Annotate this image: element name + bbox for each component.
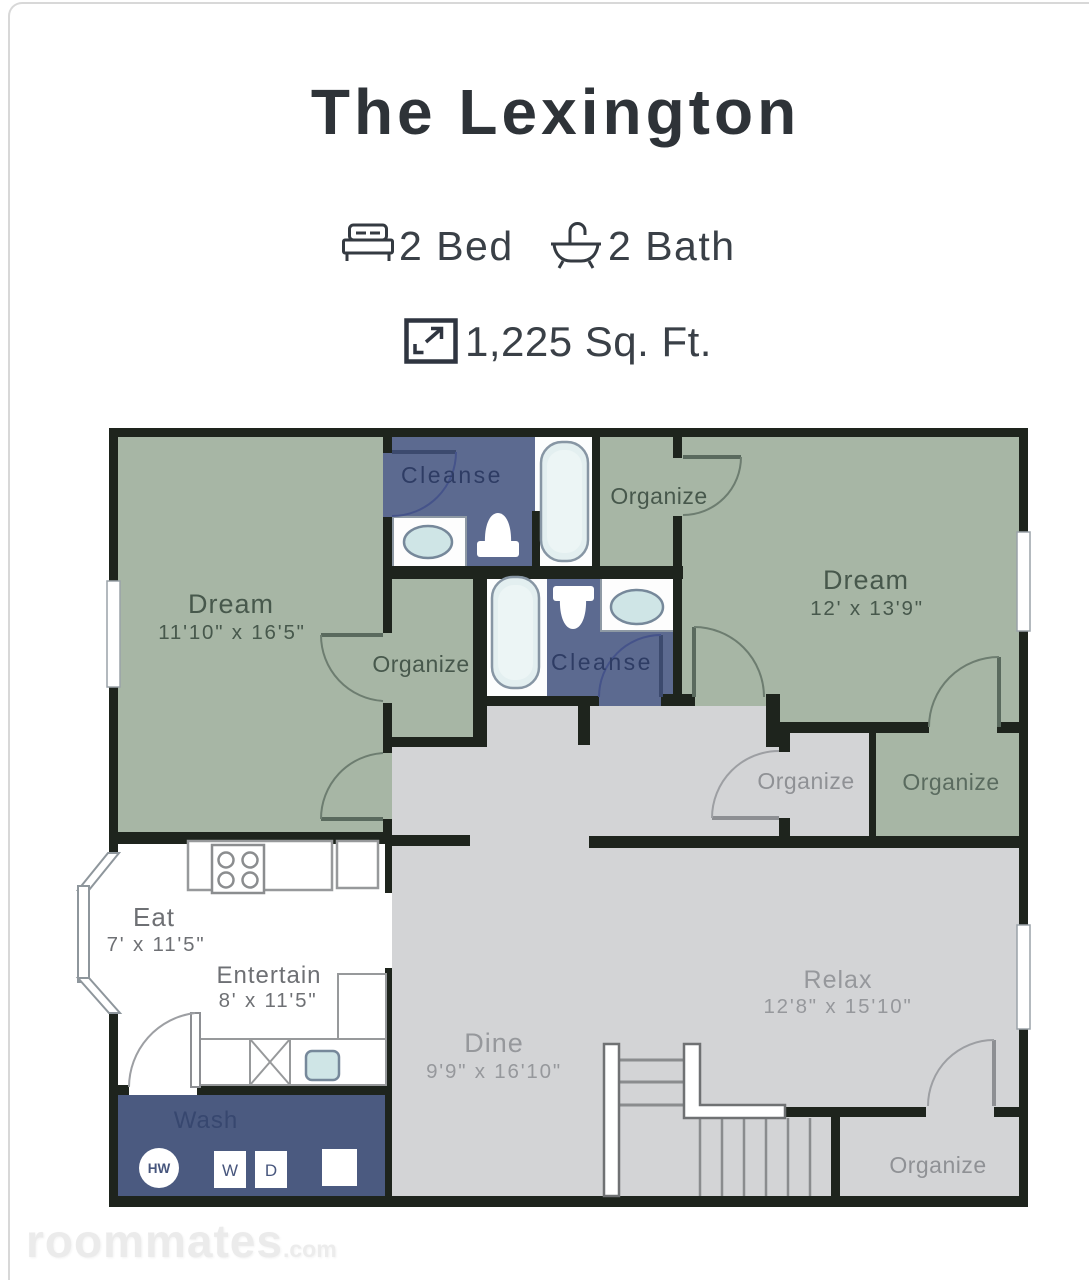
svg-text:Relax: Relax	[804, 966, 873, 994]
svg-text:Organize: Organize	[902, 769, 999, 795]
svg-text:12' x 13'9": 12' x 13'9"	[810, 597, 924, 620]
svg-text:Dine: Dine	[464, 1028, 524, 1058]
svg-text:9'9" x 16'10": 9'9" x 16'10"	[426, 1060, 562, 1083]
svg-text:Cleanse: Cleanse	[551, 649, 653, 675]
svg-text:8' x 11'5": 8' x 11'5"	[219, 989, 318, 1012]
svg-text:11'10" x 16'5": 11'10" x 16'5"	[158, 621, 306, 644]
svg-text:HW: HW	[148, 1161, 171, 1176]
svg-text:Entertain: Entertain	[216, 962, 321, 989]
svg-text:Wash: Wash	[174, 1107, 238, 1134]
svg-text:W: W	[222, 1161, 238, 1180]
svg-text:Eat: Eat	[133, 902, 175, 932]
svg-text:7' x 11'5": 7' x 11'5"	[107, 933, 206, 956]
svg-text:Cleanse: Cleanse	[401, 462, 503, 488]
svg-text:Dream: Dream	[188, 589, 274, 619]
svg-text:D: D	[265, 1161, 277, 1180]
svg-text:Organize: Organize	[610, 483, 707, 509]
svg-text:12'8" x 15'10": 12'8" x 15'10"	[763, 995, 912, 1018]
svg-text:Organize: Organize	[757, 768, 854, 794]
svg-text:Organize: Organize	[889, 1152, 986, 1178]
svg-text:Dream: Dream	[823, 565, 909, 595]
svg-text:Organize: Organize	[372, 651, 469, 677]
